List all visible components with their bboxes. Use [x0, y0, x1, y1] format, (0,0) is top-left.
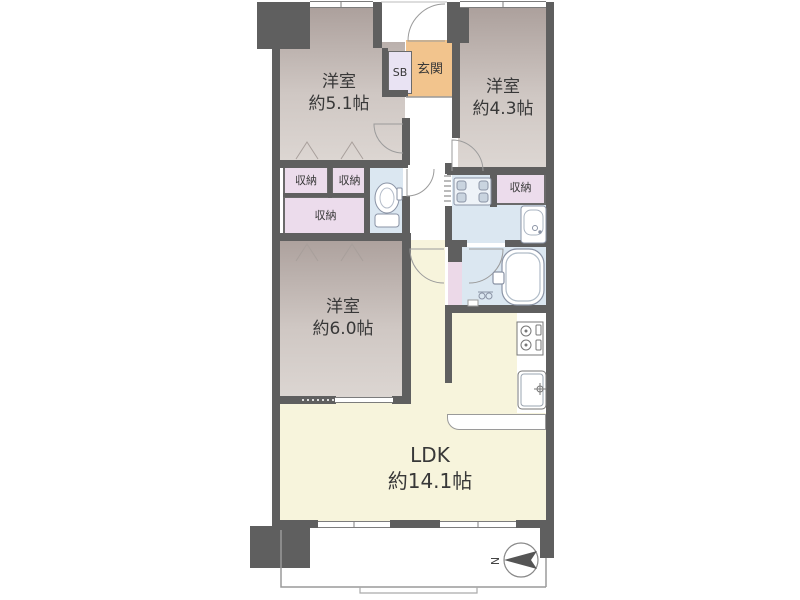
room43-name: 洋室	[455, 76, 551, 98]
room51-size: 約5.1帖	[278, 93, 400, 115]
closet4-label: 収納	[495, 181, 546, 196]
shoebox-label: SB	[387, 66, 413, 81]
room43-label: 洋室 約4.3帖	[455, 76, 551, 121]
closet1-label: 収納	[283, 174, 329, 189]
closet2-label: 収納	[331, 174, 368, 189]
room51-name: 洋室	[278, 71, 400, 93]
entrance-door-arc	[408, 4, 445, 41]
compass-north-label: N	[489, 557, 502, 565]
room51-label: 洋室 約5.1帖	[278, 71, 400, 116]
kitchen-sink-icon	[518, 371, 546, 409]
bathtub-icon	[493, 249, 544, 305]
compass-icon: N	[489, 543, 538, 577]
room60-label: 洋室 約6.0帖	[283, 296, 403, 341]
floor-plan: N 洋室 約5.1帖 洋室 約4.3帖 洋室 約6.0帖 LDK 約14.1帖 …	[0, 0, 800, 600]
closet-fold-icons	[296, 142, 363, 261]
gas-stove-icon	[517, 322, 543, 355]
toilet-door-arc	[407, 169, 434, 196]
room43-size: 約4.3帖	[455, 98, 551, 120]
washing-machine-pan-icon	[454, 178, 491, 205]
ldk-name: LDK	[350, 442, 510, 468]
washbasin-icon	[521, 206, 546, 243]
genkan-label: 玄関	[408, 61, 452, 78]
room43-door-arc	[452, 140, 483, 171]
bath-threshold	[468, 300, 478, 306]
closet3-label: 収納	[283, 209, 368, 224]
ldk-label: LDK 約14.1帖	[350, 442, 510, 495]
room60-name: 洋室	[283, 296, 403, 318]
balcony-step	[360, 587, 477, 593]
ldk-door-arc	[410, 249, 444, 283]
ldk-size: 約14.1帖	[350, 468, 510, 494]
room51-door-arc	[374, 124, 403, 153]
bath-faucet-icon	[478, 292, 493, 299]
washroom-folding-door-icon	[444, 176, 451, 201]
toilet-icon	[375, 183, 402, 227]
room60-size: 約6.0帖	[283, 318, 403, 340]
